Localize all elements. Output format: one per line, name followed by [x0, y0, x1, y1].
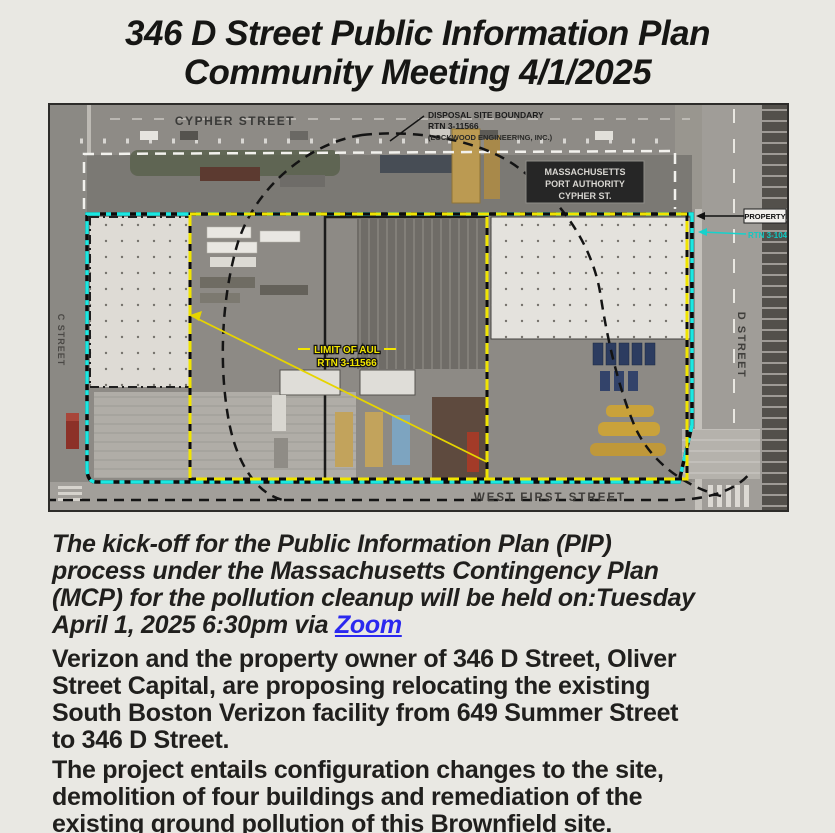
- kickoff-line4: April 1, 2025 6:30pm via Zoom: [52, 612, 814, 639]
- aul-label-line2: RTN 3-11566: [317, 358, 377, 369]
- cypher-street-label: CYPHER STREET: [175, 114, 295, 128]
- flyer-page: 346 D Street Public Information Plan Com…: [0, 0, 835, 833]
- massport-sign-line3: CYPHER ST.: [558, 191, 611, 201]
- west-first-street-road: [50, 482, 787, 510]
- verizon-line3: South Boston Verizon facility from 649 S…: [52, 700, 814, 727]
- page-title-line1: 346 D Street Public Information Plan: [0, 14, 835, 53]
- disposal-boundary-label-line2: RTN 3-11566: [428, 121, 479, 131]
- massport-sign-line1: MASSACHUSETTS: [544, 167, 625, 177]
- kickoff-line2: process under the Massachusetts Continge…: [52, 558, 814, 585]
- kickoff-line1: The kick-off for the Public Information …: [52, 531, 814, 558]
- verizon-paragraph: Verizon and the property owner of 346 D …: [52, 646, 814, 754]
- aul-label-line1: LIMIT OF AUL: [314, 345, 380, 356]
- kickoff-paragraph: The kick-off for the Public Information …: [52, 531, 814, 639]
- property-rtn-label: RTN 3-10451: [748, 231, 787, 240]
- disposal-boundary-label-line1: DISPOSAL SITE BOUNDARY: [428, 110, 544, 120]
- site-map-svg: CYPHER STREET DISPOSAL SITE BOUNDARY RTN…: [50, 105, 787, 510]
- project-line3: existing ground pollution of this Brownf…: [52, 811, 814, 833]
- verizon-line1: Verizon and the property owner of 346 D …: [52, 646, 814, 673]
- massport-sign: MASSACHUSETTS PORT AUTHORITY CYPHER ST.: [526, 161, 644, 203]
- kickoff-line3: (MCP) for the pollution cleanup will be …: [52, 585, 814, 612]
- c-street-road: [50, 105, 87, 510]
- d-street-label: D STREET: [735, 312, 747, 378]
- kickoff-line4-prefix: April 1, 2025 6:30pm via: [52, 611, 335, 639]
- massport-sign-line2: PORT AUTHORITY: [545, 179, 625, 189]
- project-line1: The project entails configuration change…: [52, 757, 814, 784]
- c-street-label: C STREET: [56, 314, 66, 367]
- page-title-line2: Community Meeting 4/1/2025: [0, 53, 835, 92]
- verizon-line2: Street Capital, are proposing relocating…: [52, 673, 814, 700]
- property-label: PROPERTY: [744, 212, 785, 221]
- zoom-meeting-link[interactable]: Zoom: [335, 611, 402, 639]
- page-title: 346 D Street Public Information Plan Com…: [0, 14, 835, 92]
- verizon-line4: to 346 D Street.: [52, 727, 814, 754]
- project-line2: demolition of four buildings and remedia…: [52, 784, 814, 811]
- site-aerial-map: CYPHER STREET DISPOSAL SITE BOUNDARY RTN…: [48, 103, 789, 512]
- west-first-street-label: WEST FIRST STREET: [474, 492, 626, 504]
- disposal-boundary-label-line3: (LOCKWOOD ENGINEERING, INC.): [428, 133, 553, 142]
- project-paragraph: The project entails configuration change…: [52, 757, 814, 833]
